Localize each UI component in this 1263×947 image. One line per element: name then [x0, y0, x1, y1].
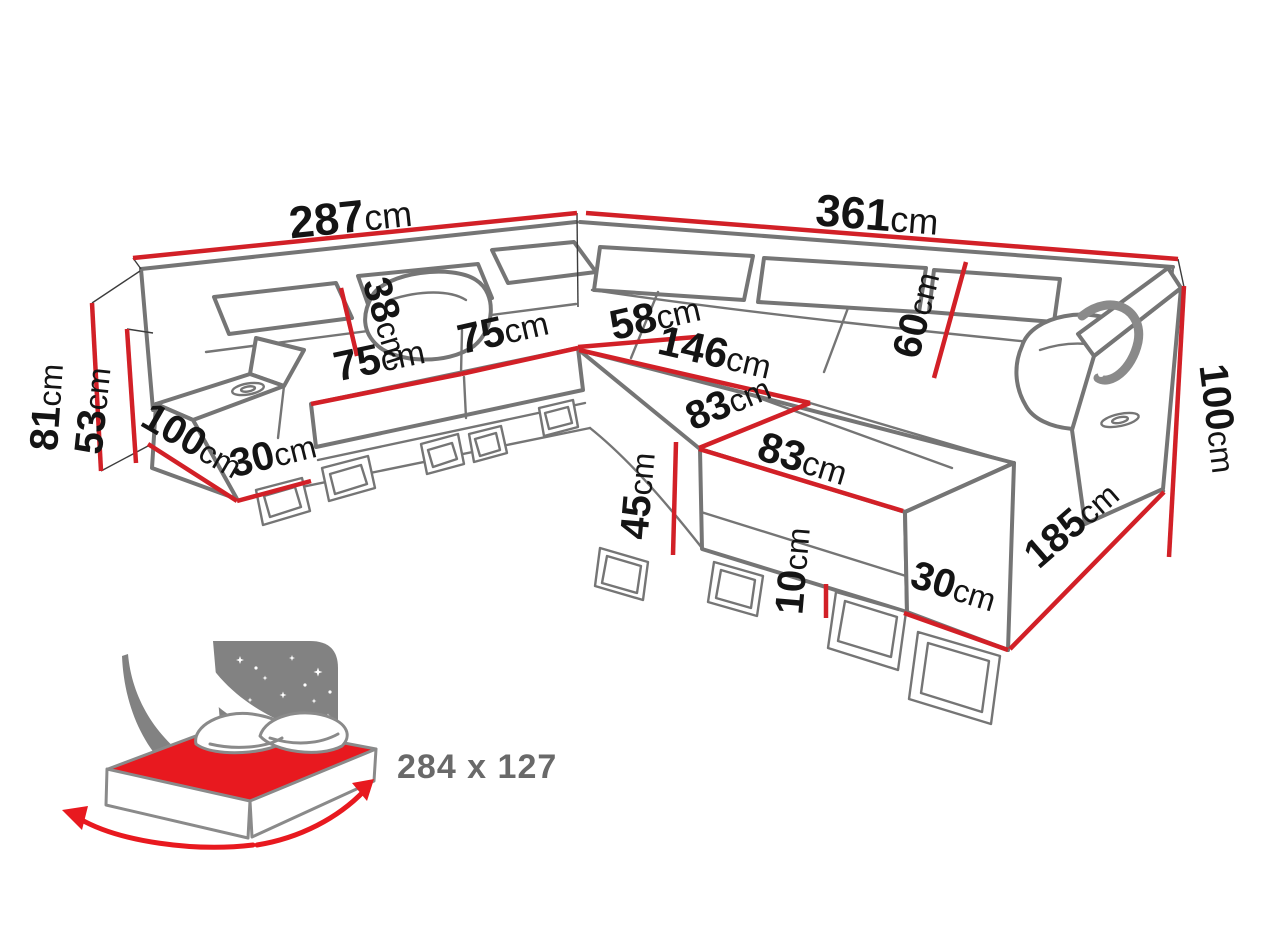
dim-line-chaise-front-height — [673, 442, 676, 555]
dim-label-armrest-width-left: 30cm — [225, 422, 320, 486]
dim-label-back-width-left: 287cm — [287, 185, 415, 249]
headrest-panel-1 — [214, 283, 352, 334]
dim-label-backrest-height-left: 53cm — [67, 365, 120, 456]
dim-label-height-right: 100cm — [1190, 361, 1247, 475]
diagram-page: 287cm 361cm 81cm 53cm 100cm 30cm 75cm 38… — [0, 0, 1263, 947]
headrest-panel-corner — [492, 242, 596, 283]
dim-line-backrest-height-left — [127, 329, 136, 463]
bed-sleeping-size-label: 284 x 127 — [397, 748, 557, 786]
dim-label-total-height: 81cm — [22, 362, 72, 452]
left-back-edge — [141, 269, 153, 410]
sofa-bed-icon: 284 x 127 — [62, 641, 557, 847]
dim-label-back-width-right: 361cm — [814, 184, 941, 245]
reading-lamp-dot — [1098, 371, 1104, 377]
right-seat-seam-2 — [824, 308, 848, 372]
headrest-panel-3 — [594, 247, 753, 300]
sofa-dimension-diagram: 287cm 361cm 81cm 53cm 100cm 30cm 75cm 38… — [0, 0, 1263, 947]
dim-label-chaise-front-height: 45cm — [612, 451, 663, 542]
dim-label-depth-right: 185cm — [1016, 472, 1127, 577]
left-armrest-inner-edge — [278, 386, 284, 438]
headrest-panel-5 — [929, 270, 1060, 322]
headrest-panel-4 — [758, 258, 926, 312]
pillow-icon-right — [260, 713, 347, 752]
length-arrow-head — [62, 806, 88, 830]
